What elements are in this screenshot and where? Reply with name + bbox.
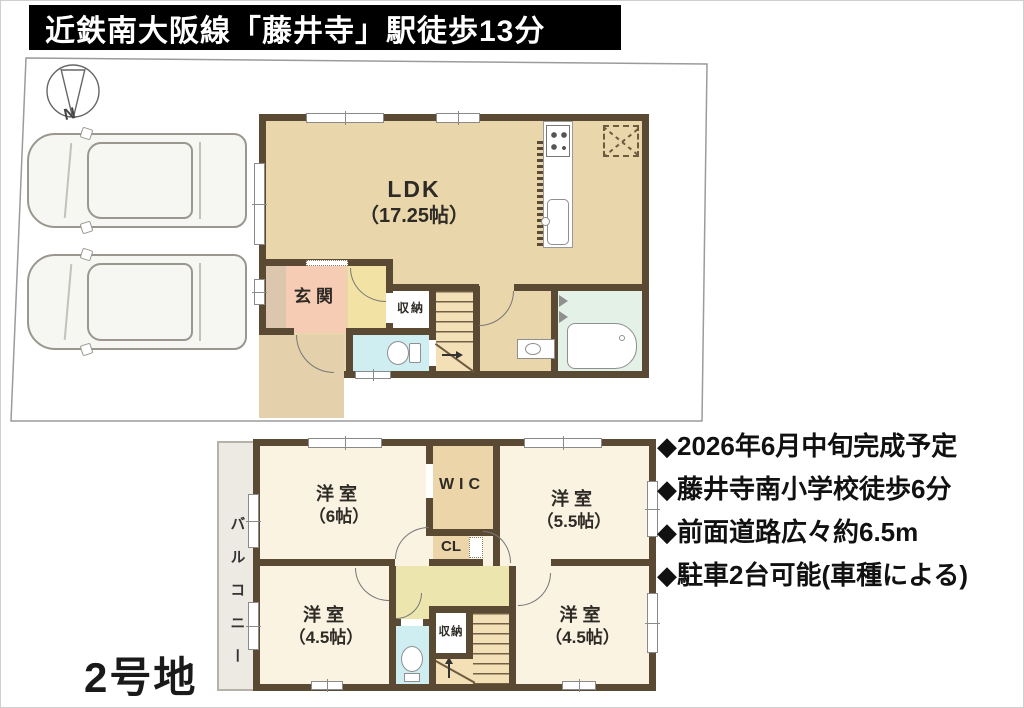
- wall: [473, 606, 509, 613]
- lot-number-label: 2号地: [84, 644, 197, 705]
- car-mirror: [80, 248, 94, 262]
- feature-item: ◆駐車2台可能(車種による): [657, 554, 1024, 597]
- wall: [389, 566, 396, 684]
- window: [355, 371, 391, 379]
- toilet-tank: [409, 343, 421, 363]
- window: [436, 113, 480, 123]
- vanity-basin: [525, 343, 541, 355]
- window: [254, 163, 265, 245]
- room-se-label: 洋室 （4.5帖）: [516, 597, 649, 655]
- wall: [429, 559, 483, 566]
- toilet-icon: [401, 646, 423, 672]
- car-cabin: [87, 263, 193, 341]
- wall: [551, 559, 649, 566]
- toilet-icon: [387, 341, 409, 365]
- title-banner: 近鉄南大阪線「藤井寺」駅徒歩13分: [29, 5, 621, 50]
- storage1-label: 収納: [387, 300, 435, 317]
- wall: [259, 328, 294, 335]
- ldk-name: LDK: [387, 175, 440, 204]
- ldk-label: LDK （17.25帖）: [328, 175, 500, 229]
- attic-hatch-marker: [603, 125, 639, 157]
- car-icon: [27, 133, 247, 228]
- faucet-icon: [541, 217, 550, 226]
- stairs-2f: [473, 613, 509, 684]
- room-sw-label: 洋室 （4.5帖）: [263, 597, 389, 655]
- wall: [260, 559, 395, 566]
- closet-folding-door: [306, 260, 348, 266]
- wall: [346, 328, 436, 335]
- wall: [551, 291, 558, 378]
- window: [311, 681, 343, 690]
- stairs-1f: [436, 291, 473, 343]
- room-ne-label: 洋室 （5.5帖）: [501, 481, 647, 539]
- feature-item: ◆2026年6月中旬完成予定: [657, 425, 1024, 468]
- cl-label: CL: [433, 537, 469, 558]
- shower-door-icon: [559, 295, 568, 307]
- wall: [429, 606, 436, 684]
- toilet2-door: [401, 619, 423, 626]
- wall: [514, 284, 649, 291]
- window: [248, 602, 259, 650]
- ldk-size: （17.25帖）: [359, 204, 469, 229]
- wic-label: WIC: [431, 473, 493, 497]
- window: [524, 438, 602, 448]
- wall: [436, 653, 466, 659]
- storage2-label: 収納: [431, 623, 471, 641]
- feature-item: ◆前面道路広々約6.5m: [657, 511, 1024, 554]
- bathtub-icon: [567, 323, 637, 369]
- genkan-label: 玄関: [285, 285, 347, 309]
- toilet-base: [404, 673, 420, 682]
- car-cabin: [87, 142, 193, 219]
- wall: [509, 566, 516, 684]
- window: [562, 681, 596, 690]
- stairs-up-arrow: [442, 354, 456, 356]
- cl-folding-door: [469, 537, 483, 558]
- kitchen-sink: [547, 199, 569, 245]
- car-icon: [27, 254, 247, 350]
- feature-item: ◆藤井寺南小学校徒歩6分: [657, 468, 1024, 511]
- flyer-canvas: N: [0, 0, 1024, 708]
- window: [248, 494, 259, 548]
- stove-icon: [546, 125, 570, 157]
- stairs-up-arrow: [448, 663, 450, 678]
- window: [254, 279, 265, 305]
- wall: [346, 328, 353, 378]
- genkan-step: [266, 266, 286, 333]
- feature-list: ◆2026年6月中旬完成予定 ◆藤井寺南小学校徒歩6分 ◆前面道路広々約6.5m…: [657, 425, 1024, 597]
- car-mirror: [80, 127, 94, 141]
- window: [308, 438, 382, 448]
- bath-drain: [619, 335, 625, 341]
- window: [306, 113, 384, 123]
- page-title: 近鉄南大阪線「藤井寺」駅徒歩13分: [29, 6, 545, 50]
- wall: [429, 606, 473, 613]
- shower-door-icon: [559, 311, 568, 323]
- room-nw-label: 洋室 （6帖）: [263, 477, 415, 533]
